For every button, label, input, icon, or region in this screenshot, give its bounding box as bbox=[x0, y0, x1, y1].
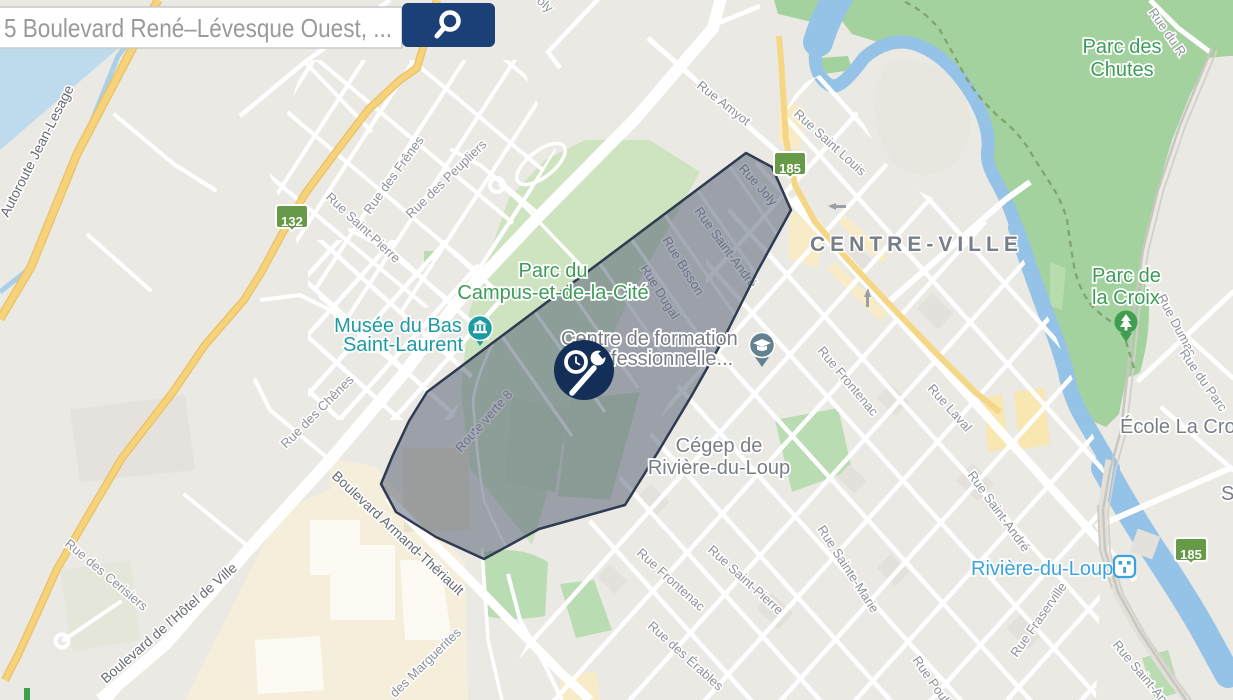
svg-text:École La Croix: École La Croix bbox=[1120, 415, 1233, 438]
svg-text:Saint-Laurent: Saint-Laurent bbox=[343, 334, 464, 356]
svg-text:Parc de: Parc de bbox=[1092, 265, 1161, 287]
svg-text:la Croix: la Croix bbox=[1092, 287, 1160, 309]
svg-text:Cégep de: Cégep de bbox=[676, 435, 763, 457]
svg-text:Rivière-du-Loup: Rivière-du-Loup bbox=[648, 457, 790, 479]
svg-text:185: 185 bbox=[1180, 547, 1202, 562]
svg-text:Parc des: Parc des bbox=[1083, 36, 1162, 58]
svg-text:Rivière-du-Loup: Rivière-du-Loup bbox=[971, 558, 1113, 580]
svg-text:185: 185 bbox=[779, 161, 801, 176]
svg-text:Sain: Sain bbox=[1221, 483, 1233, 505]
svg-text:Campus-et-de-la-Cité: Campus-et-de-la-Cité bbox=[457, 282, 648, 304]
svg-text:Parc du: Parc du bbox=[519, 260, 588, 282]
svg-text:5 Boulevard René–Lévesque Oues: 5 Boulevard René–Lévesque Ouest, ... bbox=[4, 13, 392, 43]
svg-text:132: 132 bbox=[281, 214, 303, 229]
svg-text:CENTRE-VILLE: CENTRE-VILLE bbox=[810, 233, 1023, 256]
svg-text:Chutes: Chutes bbox=[1090, 59, 1153, 81]
